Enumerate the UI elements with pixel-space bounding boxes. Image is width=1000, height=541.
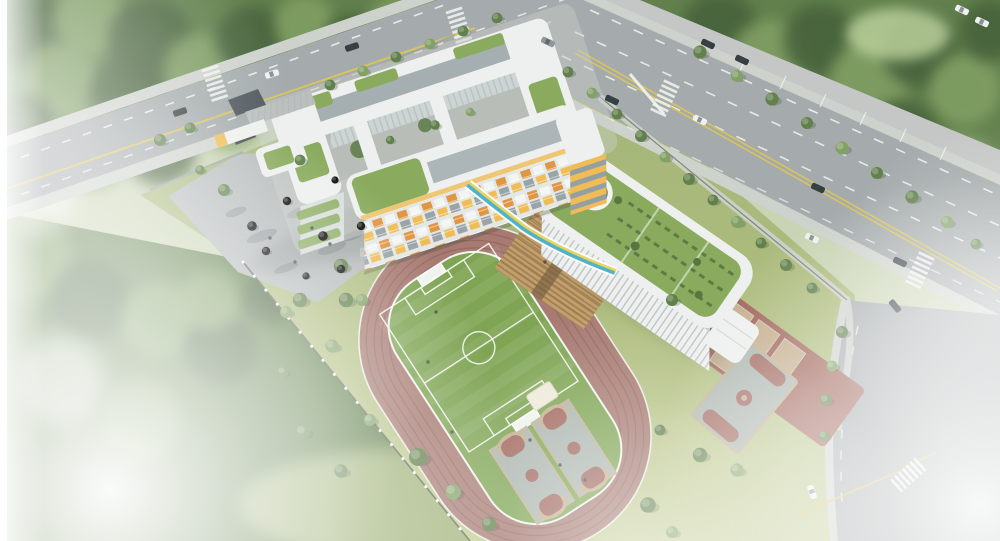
atmosphere	[0, 0, 1000, 541]
mist-bottom-right	[0, 0, 1000, 541]
aerial-rendering	[0, 0, 1000, 541]
left-border-strip	[0, 0, 7, 541]
scene-svg	[0, 0, 1000, 541]
